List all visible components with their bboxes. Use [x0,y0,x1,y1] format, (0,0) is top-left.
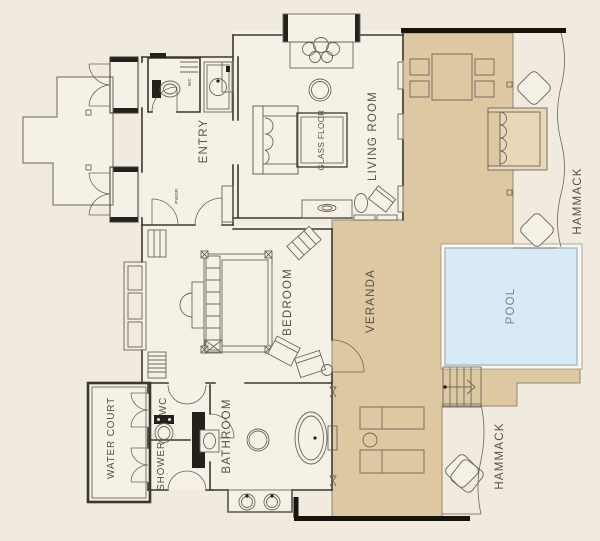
label-wc: WC [158,397,169,415]
wc-window [150,53,166,58]
label-bedroom: BEDROOM [282,268,294,336]
label-living-room: LIVING ROOM [367,91,379,181]
label-pool: POOL [505,288,517,325]
floor-plan-page: POOL HAMMACK HAMMACK [0,0,600,541]
label-hammack-upper: HAMMACK [572,167,584,234]
pool-area: POOL [441,244,582,369]
label-veranda: VERANDA [365,269,377,333]
label-wc-small: WC [187,77,193,86]
label-entry: ENTRY [198,119,210,164]
label-shower: SHOWER [156,441,167,491]
daybed [488,108,547,170]
label-powder: PWDR [174,188,180,204]
floor-plan-drawing: POOL HAMMACK HAMMACK [0,0,600,541]
label-bathroom: BATHROOM [221,398,233,473]
label-hammack-lower: HAMMACK [494,422,506,489]
label-glass-floor: GLASS FLOOR [317,110,326,171]
label-water-court: WATER COURT [106,397,117,479]
